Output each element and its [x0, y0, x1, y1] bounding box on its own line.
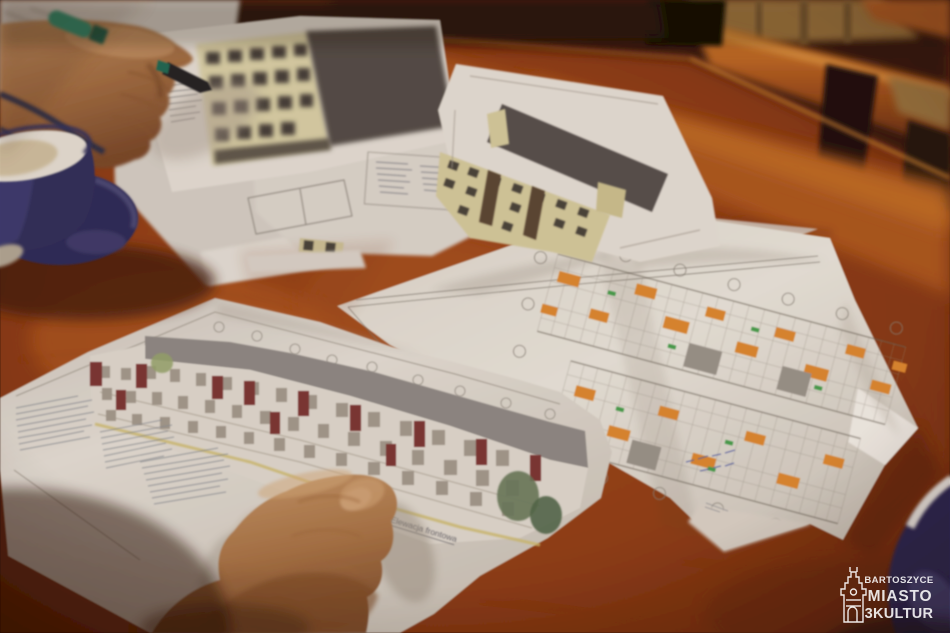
svg-text:MIASTO: MIASTO [868, 588, 933, 605]
svg-text:BARTOSZYCE: BARTOSZYCE [864, 575, 933, 586]
svg-text:3KULTUR: 3KULTUR [865, 606, 934, 622]
